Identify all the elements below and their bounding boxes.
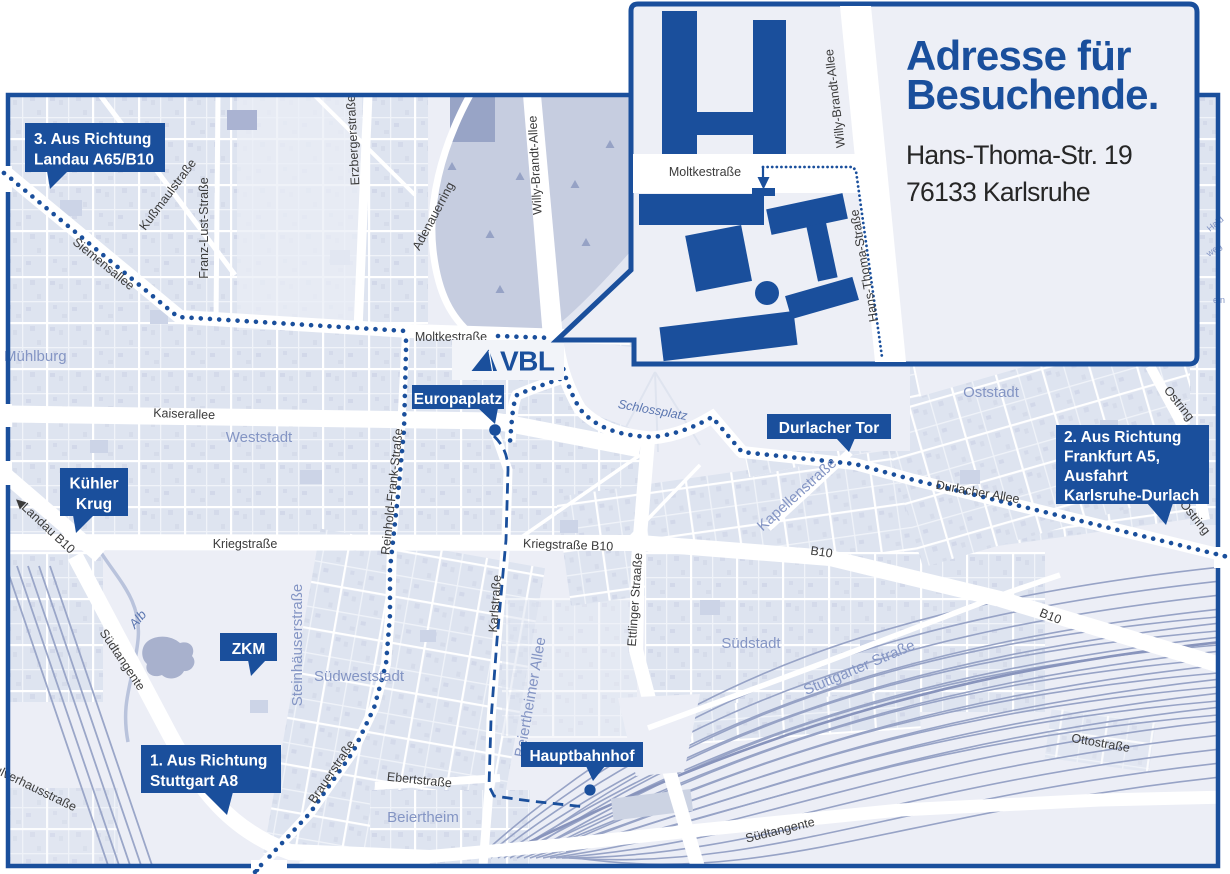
svg-text:ZKM: ZKM	[232, 641, 266, 658]
svg-text:1. Aus Richtung: 1. Aus Richtung	[150, 753, 267, 770]
svg-text:Europaplatz: Europaplatz	[414, 391, 503, 408]
svg-text:Kaiserallee: Kaiserallee	[153, 406, 215, 422]
svg-text:3. Aus Richtung: 3. Aus Richtung	[34, 131, 151, 148]
svg-text:2. Aus Richtung: 2. Aus Richtung	[1064, 429, 1181, 446]
svg-text:Landau A65/B10: Landau A65/B10	[34, 152, 154, 169]
svg-text:Krug: Krug	[76, 496, 112, 513]
svg-text:Moltkestraße: Moltkestraße	[669, 165, 741, 179]
svg-text:VBL: VBL	[500, 346, 555, 377]
svg-text:Kriegstraße: Kriegstraße	[213, 537, 278, 551]
svg-text:Beiertheim: Beiertheim	[387, 809, 459, 826]
svg-text:Ausfahrt: Ausfahrt	[1064, 468, 1128, 485]
svg-text:Besuchende.: Besuchende.	[906, 71, 1159, 118]
svg-text:Frankfurt A5,: Frankfurt A5,	[1064, 449, 1160, 466]
svg-text:Durlacher Tor: Durlacher Tor	[779, 420, 880, 437]
svg-text:Weststadt: Weststadt	[226, 429, 293, 446]
svg-text:Stuttgart A8: Stuttgart A8	[150, 773, 238, 790]
svg-text:Südweststadt: Südweststadt	[314, 668, 405, 685]
svg-text:Oststadt: Oststadt	[963, 384, 1020, 401]
svg-text:Mühlburg: Mühlburg	[4, 348, 67, 365]
svg-text:Südstadt: Südstadt	[721, 635, 781, 652]
svg-text:Kühler: Kühler	[69, 476, 118, 493]
svg-text:Franz-Lust-Straße: Franz-Lust-Straße	[197, 177, 211, 278]
svg-text:76133 Karlsruhe: 76133 Karlsruhe	[906, 177, 1090, 207]
svg-text:Hauptbahnhof: Hauptbahnhof	[529, 748, 635, 765]
svg-text:Hans-Thoma-Str. 19: Hans-Thoma-Str. 19	[906, 140, 1132, 170]
svg-text:Karlsruhe-Durlach: Karlsruhe-Durlach	[1064, 488, 1199, 505]
svg-text:Steinhäuserstraße: Steinhäuserstraße	[289, 584, 306, 707]
